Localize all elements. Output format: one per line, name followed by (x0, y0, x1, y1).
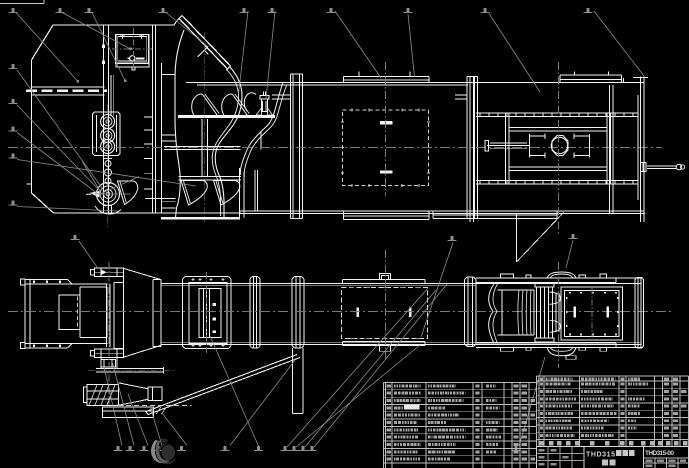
svg-text:THD315-00: THD315-00 (645, 450, 674, 457)
svg-text:THD315: THD315 (586, 452, 615, 459)
